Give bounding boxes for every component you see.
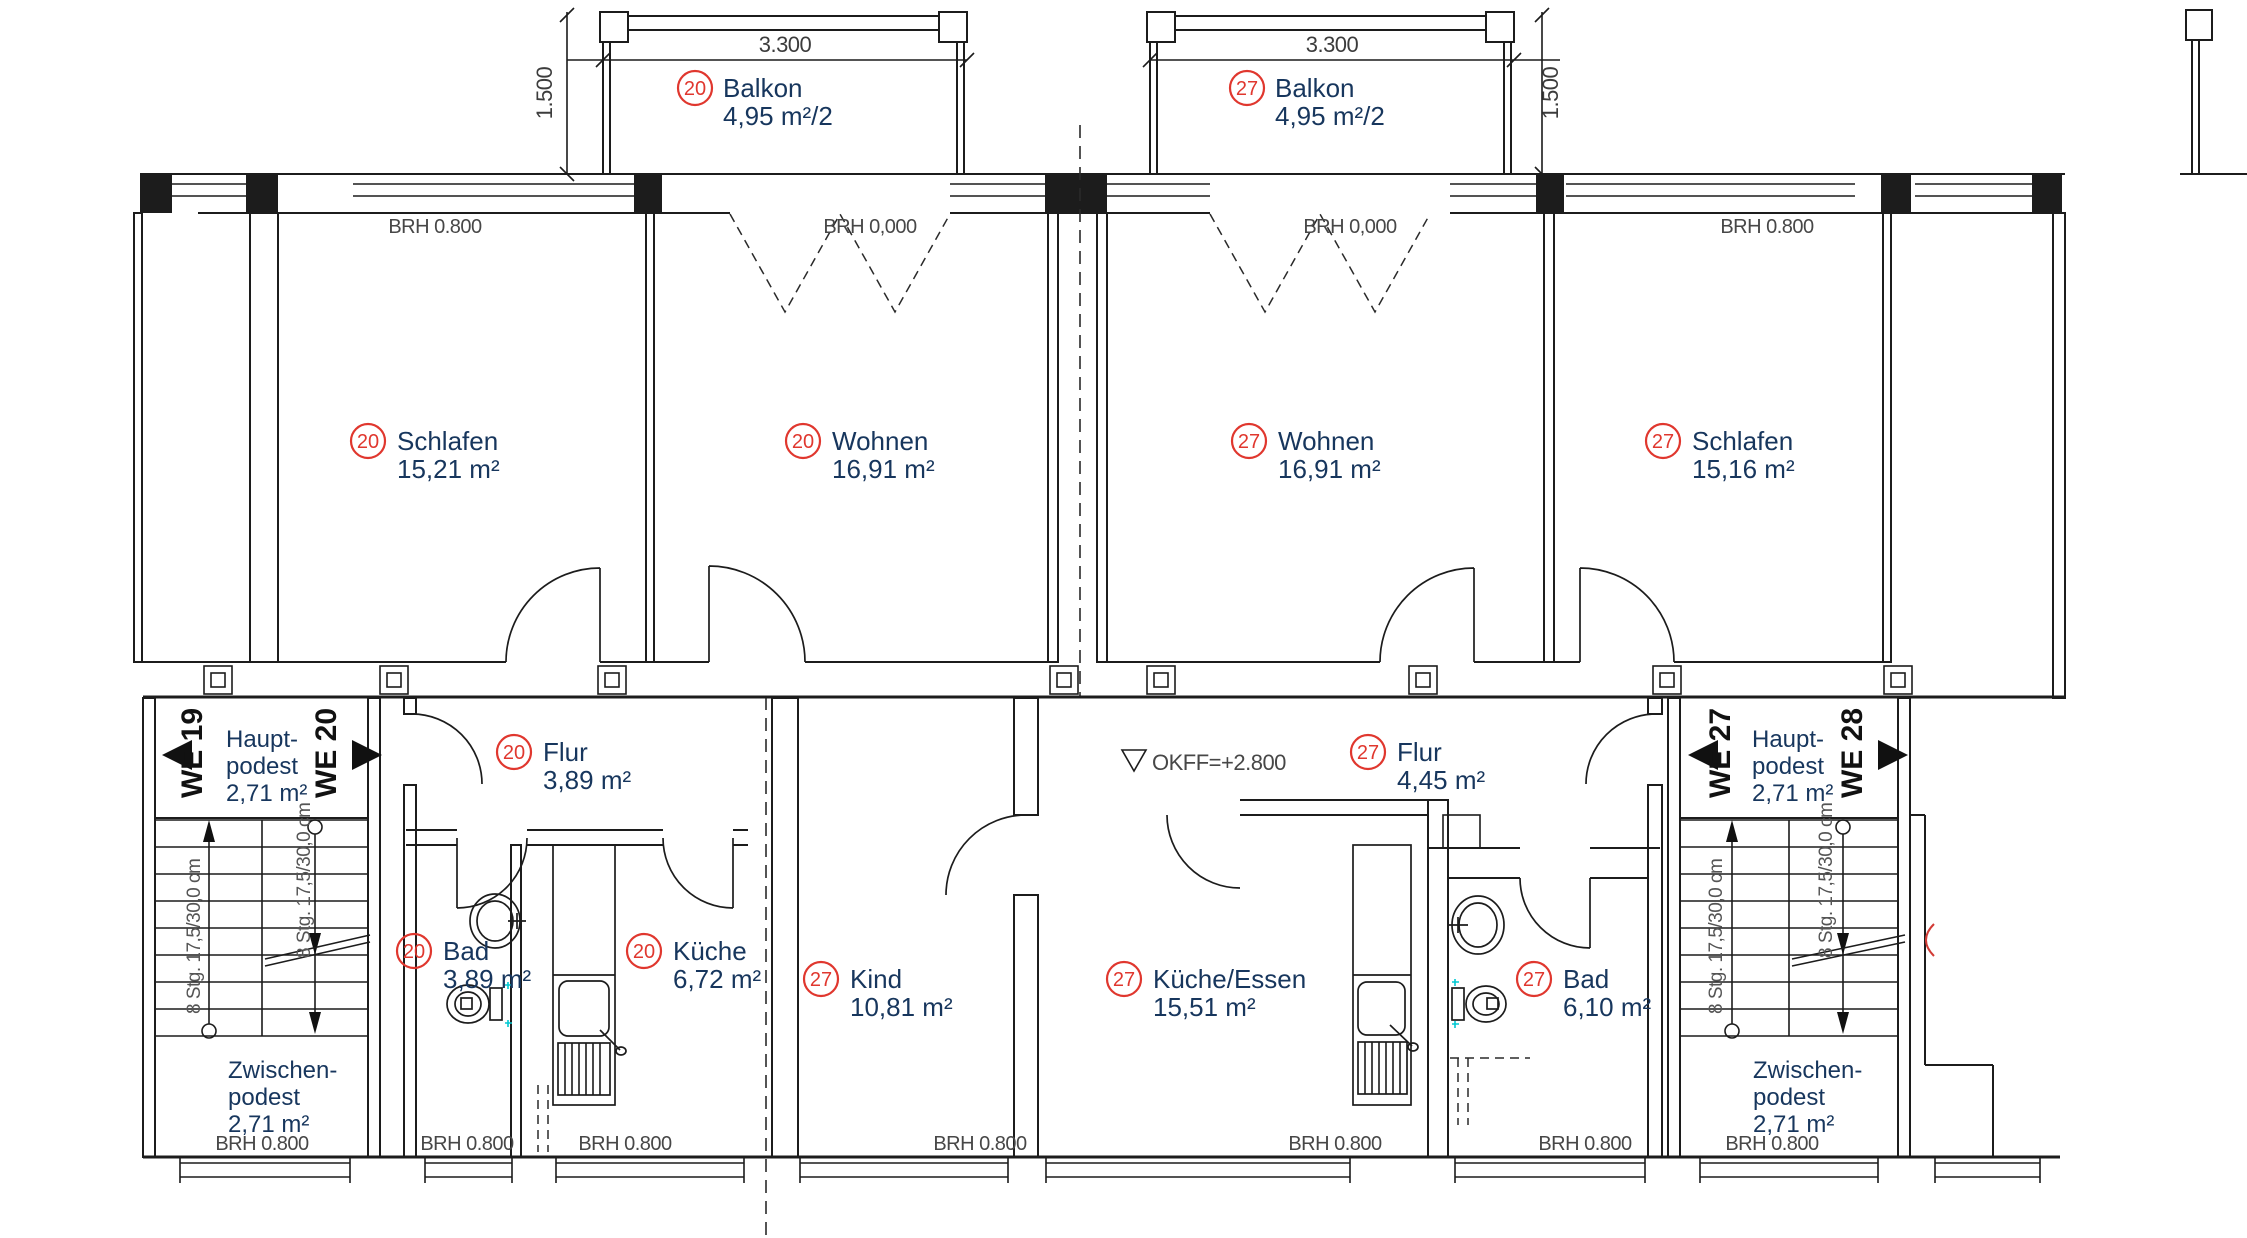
zwischenpodest-right-line2: podest <box>1753 1084 1825 1111</box>
zwischenpodest-right-line1: Zwischen- <box>1753 1057 1862 1084</box>
stairs-text-left-flight1: 8 Stg. 17,5/30,0 cm <box>184 859 205 1014</box>
room-label-wohnen-27: 27 Wohnen 16,91 m² <box>1232 424 1381 484</box>
we-markers-left: WE 19 WE 20 Haupt- podest 2,71 m² <box>162 708 382 807</box>
unit-number: 20 <box>357 431 379 453</box>
we19-label: WE 19 <box>176 708 209 798</box>
hauptpodest-right-line1: Haupt- <box>1752 726 1824 753</box>
we-markers-right: WE 27 WE 28 Haupt- podest 2,71 m² <box>1688 708 1908 807</box>
room-name: Flur <box>1397 737 1442 767</box>
unit-number: 20 <box>633 941 655 963</box>
okff-level-mark: OKFF=+2.800 <box>1122 750 1286 775</box>
kitchen-20-unit <box>553 845 626 1105</box>
we20-label: WE 20 <box>310 708 343 798</box>
room-name: Wohnen <box>1278 426 1374 456</box>
floorplan-page: 3.300 3.300 1.500 1.500 <box>0 0 2247 1238</box>
duct-boxes <box>204 666 1912 694</box>
zwischenpodest-left-line1: Zwischen- <box>228 1057 337 1084</box>
section-dashed-lines <box>766 125 1080 1238</box>
room-label-kind-27: 27 Kind 10,81 m² <box>804 962 953 1022</box>
unit-number: 27 <box>1113 969 1135 991</box>
brh-bottom-bad27: BRH 0.800 <box>1538 1133 1632 1155</box>
bottom-wall <box>143 1157 2060 1183</box>
zwischenpodest-right-area: 2,71 m² <box>1753 1111 1834 1138</box>
hauptpodest-right-line2: podest <box>1752 753 1824 780</box>
room-area: 15,21 m² <box>397 454 500 484</box>
room-name: Balkon <box>723 73 803 103</box>
stairs-text-left-flight2: 8 Stg. 17,5/30,0 cm <box>294 803 315 958</box>
facade-walls <box>140 174 2247 213</box>
room-name: Schlafen <box>1692 426 1793 456</box>
room-label-flur-27: 27 Flur 4,45 m² <box>1351 735 1485 795</box>
unit-number: 27 <box>1357 742 1379 764</box>
room-area: 4,95 m²/2 <box>723 101 833 131</box>
room-name: Wohnen <box>832 426 928 456</box>
neighbour-balcony-fragment <box>2186 10 2212 174</box>
room-label-balkon-27: 27 Balkon 4,95 m²/2 <box>1230 71 1385 131</box>
brh-top-schlafen20: BRH 0.800 <box>388 216 482 238</box>
brh-bottom-kind27: BRH 0.800 <box>933 1133 1027 1155</box>
brh-bottom-bad20: BRH 0.800 <box>420 1133 514 1155</box>
kitchen-27-unit <box>1353 845 1418 1105</box>
room-area: 15,51 m² <box>1153 992 1256 1022</box>
brh-bottom-kueche-essen27: BRH 0.800 <box>1288 1133 1382 1155</box>
unit-number: 27 <box>1236 78 1258 100</box>
unit-number: 20 <box>792 431 814 453</box>
we28-label: WE 28 <box>1836 708 1869 798</box>
dim-balcony-depth-left: 1.500 <box>532 66 557 119</box>
we27-label: WE 27 <box>1704 708 1737 798</box>
floor-plan-drawing: 3.300 3.300 1.500 1.500 <box>0 0 2247 1238</box>
room-name: Küche/Essen <box>1153 964 1306 994</box>
room-area: 6,72 m² <box>673 964 761 994</box>
room-area: 4,45 m² <box>1397 765 1485 795</box>
zwischenpodest-left-line2: podest <box>228 1084 300 1111</box>
room-name: Kind <box>850 964 902 994</box>
unit-number: 20 <box>684 78 706 100</box>
dim-balcony-width-left: 3.300 <box>759 32 812 57</box>
room-area: 16,91 m² <box>832 454 935 484</box>
stairs-text-right-flight2: 8 Stg. 17,5/30,0 cm <box>1816 803 1837 958</box>
room-label-flur-20: 20 Flur 3,89 m² <box>497 735 631 795</box>
hauptpodest-left-line1: Haupt- <box>226 726 298 753</box>
room-area: 6,10 m² <box>1563 992 1651 1022</box>
room-label-schlafen-27: 27 Schlafen 15,16 m² <box>1646 424 1795 484</box>
room-name: Schlafen <box>397 426 498 456</box>
room-name: Balkon <box>1275 73 1355 103</box>
zwischenpodest-labels: Zwischen- podest 2,71 m² Zwischen- podes… <box>228 1057 1862 1138</box>
revision-mark <box>1926 924 1934 956</box>
dim-balcony-width-right: 3.300 <box>1306 32 1359 57</box>
room-label-kueche-20: 20 Küche 6,72 m² <box>627 934 761 994</box>
brh-top-wohnen20: BRH 0,000 <box>823 216 917 238</box>
room-label-balkon-20: 20 Balkon 4,95 m²/2 <box>678 71 833 131</box>
room-name: Flur <box>543 737 588 767</box>
unit-number: 27 <box>1523 969 1545 991</box>
room-area: 4,95 m²/2 <box>1275 101 1385 131</box>
room-area: 16,91 m² <box>1278 454 1381 484</box>
unit-number: 20 <box>503 742 525 764</box>
okff-text: OKFF=+2.800 <box>1152 750 1286 775</box>
we28-arrow-icon <box>1878 740 1908 770</box>
room-area: 3,89 m² <box>443 964 531 994</box>
stairs-text-right-flight1: 8 Stg. 17,5/30,0 cm <box>1706 859 1727 1014</box>
zwischenpodest-left-area: 2,71 m² <box>228 1111 309 1138</box>
toilet-27 <box>1452 979 1506 1028</box>
hauptpodest-left-line2: podest <box>226 753 298 780</box>
room-area: 15,16 m² <box>1692 454 1795 484</box>
bathroom-20-fixtures <box>447 894 548 1152</box>
room-label-kueche-essen-27: 27 Küche/Essen 15,51 m² <box>1107 962 1306 1022</box>
brh-bottom-kueche20: BRH 0.800 <box>578 1133 672 1155</box>
unit-number: 27 <box>810 969 832 991</box>
unit-number: 20 <box>403 941 425 963</box>
bathroom-27-fixtures <box>1448 896 1530 1125</box>
brh-top-schlafen27: BRH 0.800 <box>1720 216 1814 238</box>
room-label-schlafen-20: 20 Schlafen 15,21 m² <box>351 424 500 484</box>
room-label-wohnen-20: 20 Wohnen 16,91 m² <box>786 424 935 484</box>
room-door-arcs <box>506 566 1674 662</box>
brh-top-wohnen27: BRH 0,000 <box>1303 216 1397 238</box>
corridor-wall-band <box>140 662 2065 697</box>
room-area: 10,81 m² <box>850 992 953 1022</box>
room-name: Küche <box>673 936 747 966</box>
room-label-bad-27: 27 Bad 6,10 m² <box>1517 962 1651 1022</box>
dim-balcony-depth-right: 1.500 <box>1538 66 1563 119</box>
room-name: Bad <box>1563 964 1609 994</box>
unit-number: 27 <box>1652 431 1674 453</box>
room-area: 3,89 m² <box>543 765 631 795</box>
unit-number: 27 <box>1238 431 1260 453</box>
room-name: Bad <box>443 936 489 966</box>
